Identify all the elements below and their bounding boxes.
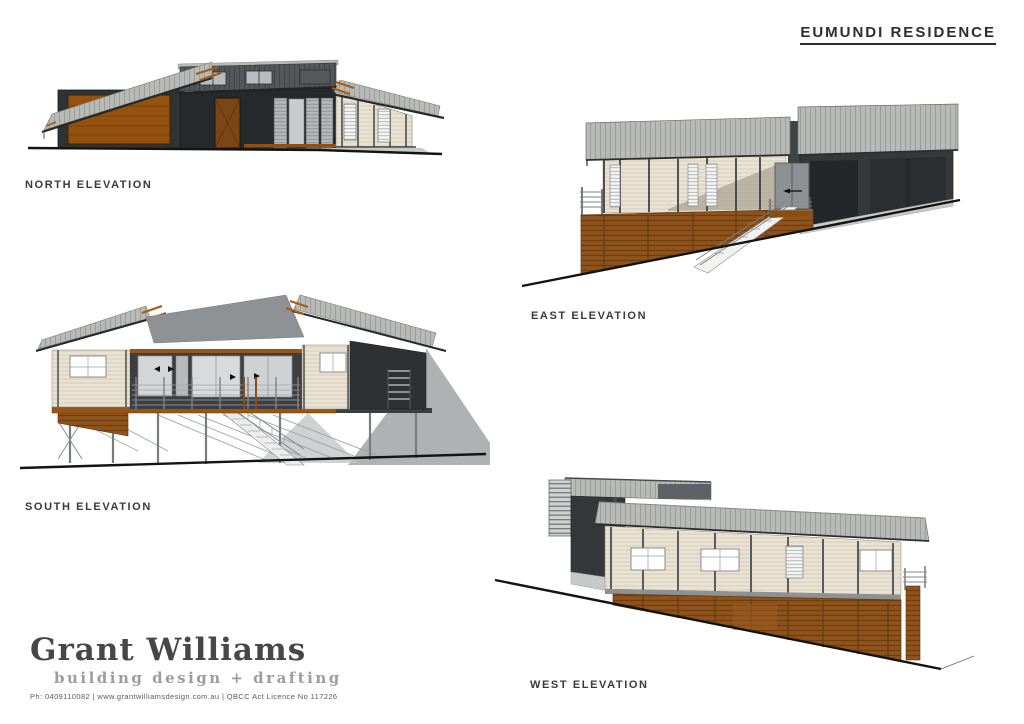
central-deck-section [130,349,302,409]
timber-screen [58,410,128,436]
screen-gate [733,604,777,630]
right-skillion-roof [286,295,446,351]
east-elevation-svg [518,103,968,303]
louvre-window [344,104,356,140]
stair-rail [903,566,927,660]
main-roof [586,117,790,160]
firm-tagline: building design + drafting [54,669,342,687]
west-elevation-svg [493,468,977,683]
louvre-window [688,164,698,206]
north-elevation-drawing [22,36,446,186]
firm-logo: Grant Williams [30,634,342,667]
garage-building [788,104,958,234]
louvre-stack [549,480,571,536]
louvre-window [706,164,717,206]
south-elevation-svg [18,293,490,511]
louvre-window [786,546,803,578]
west-elevation-label: WEST ELEVATION [530,679,649,691]
louvre-window [378,109,390,142]
east-elevation-label: EAST ELEVATION [531,310,647,322]
page-title: EUMUNDI RESIDENCE [800,24,996,45]
title-block: Grant Williams building design + draftin… [30,634,342,701]
main-roof-plane [146,295,304,343]
left-skillion-roof [36,306,166,351]
south-elevation-label: SOUTH ELEVATION [25,501,152,513]
main-building [580,117,813,274]
louvre-window [610,165,620,207]
east-elevation-drawing [518,103,968,303]
right-dark-section [350,341,426,409]
south-elevation-drawing [18,293,490,511]
louvre-sliding-doors [274,98,333,148]
right-wall [302,345,350,409]
firm-contact: Ph: 0409110082 | www.grantwilliamsdesign… [30,692,342,701]
left-wall [52,350,130,407]
drawing-sheet: EUMUNDI RESIDENCE [0,0,1024,724]
main-building [595,502,929,660]
west-elevation-drawing [493,468,977,683]
north-elevation-label: NORTH ELEVATION [25,179,152,191]
north-elevation-svg [22,36,446,186]
garage-roof [798,104,958,155]
